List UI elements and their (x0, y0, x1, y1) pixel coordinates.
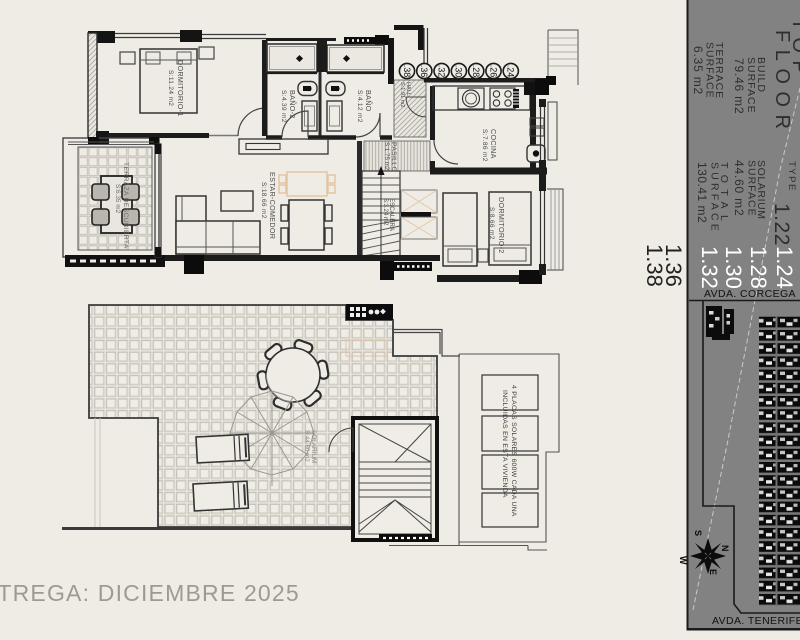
svg-text:1.32: 1.32 (697, 246, 722, 289)
svg-text:FLOOR: FLOOR (771, 30, 793, 136)
svg-text:S:1.91 m2: S:1.91 m2 (399, 82, 405, 108)
svg-text:AVDA. CORCEGA: AVDA. CORCEGA (704, 288, 796, 300)
svg-text:1.38: 1.38 (642, 244, 667, 287)
svg-text:DORMITORIO-2: DORMITORIO-2 (497, 197, 506, 254)
svg-text:SURFACE: SURFACE (746, 160, 758, 217)
svg-text:.38: .38 (402, 65, 412, 78)
svg-text:S:7.86 m2: S:7.86 m2 (481, 129, 488, 162)
svg-text:1.28: 1.28 (746, 246, 771, 289)
svg-text:BAÑO: BAÑO (364, 90, 373, 112)
svg-text:4 PLACAS SOLARES 600W CADA UNA: 4 PLACAS SOLARES 600W CADA UNA (510, 385, 517, 517)
svg-text:S:11.24 m2: S:11.24 m2 (167, 70, 174, 106)
svg-text:S:1.75 m2: S:1.75 m2 (383, 142, 390, 171)
svg-text:S:18.66 m2: S:18.66 m2 (260, 182, 267, 219)
svg-text:130.41 m2: 130.41 m2 (695, 162, 709, 223)
svg-text:6.35 m2: 6.35 m2 (691, 46, 705, 95)
svg-text:DORMITORIO-1: DORMITORIO-1 (176, 60, 185, 117)
svg-text:1.30: 1.30 (721, 246, 746, 289)
svg-text:S:4.12 m2: S:4.12 m2 (356, 90, 363, 123)
svg-text:44.60 m2: 44.60 m2 (732, 160, 746, 216)
svg-text:1.22: 1.22 (770, 203, 793, 246)
svg-text:S:6.35 m2: S:6.35 m2 (114, 184, 121, 214)
svg-text:PASILLO: PASILLO (390, 142, 397, 172)
svg-text:.28: .28 (471, 65, 481, 78)
svg-text:.24: .24 (506, 65, 516, 78)
svg-text:.26: .26 (488, 65, 498, 78)
svg-text:S:8.66 m2: S:8.66 m2 (488, 207, 495, 240)
svg-text:ENTREGA: DICIEMBRE 2025: ENTREGA: DICIEMBRE 2025 (0, 580, 300, 606)
svg-text:SURFACE: SURFACE (709, 162, 721, 234)
svg-text:.32: .32 (436, 65, 446, 78)
svg-text:.36: .36 (419, 65, 429, 78)
svg-text:S:4.39 m2: S:4.39 m2 (280, 90, 287, 123)
svg-text:ESCALERA: ESCALERA (388, 198, 395, 232)
svg-text:N: N (720, 545, 730, 552)
svg-text:S:44.60 m2: S:44.60 m2 (303, 430, 310, 462)
svg-text:COCINA: COCINA (489, 129, 498, 159)
svg-text:.30: .30 (454, 65, 464, 78)
svg-text:ESTAR-COMEDOR: ESTAR-COMEDOR (268, 172, 277, 239)
svg-text:E: E (708, 569, 718, 575)
svg-text:W: W (678, 556, 688, 565)
svg-text:79.46 m2: 79.46 m2 (732, 58, 746, 114)
svg-text:TYPE: TYPE (786, 161, 797, 192)
svg-text:SOLARIUM: SOLARIUM (310, 430, 317, 463)
svg-text:S: S (693, 530, 703, 536)
svg-text:1.24: 1.24 (772, 246, 797, 289)
svg-text:S:3.24 m2: S:3.24 m2 (382, 198, 388, 226)
svg-text:TERRAZA DESCUBIERTA: TERRAZA DESCUBIERTA (122, 162, 129, 249)
svg-text:INCLUIDAS EN ESTA VIVIENDA: INCLUIDAS EN ESTA VIVIENDA (501, 390, 508, 498)
svg-text:AVDA. TENERIFE: AVDA. TENERIFE (712, 615, 800, 627)
svg-text:BAÑO-2: BAÑO-2 (288, 90, 297, 119)
